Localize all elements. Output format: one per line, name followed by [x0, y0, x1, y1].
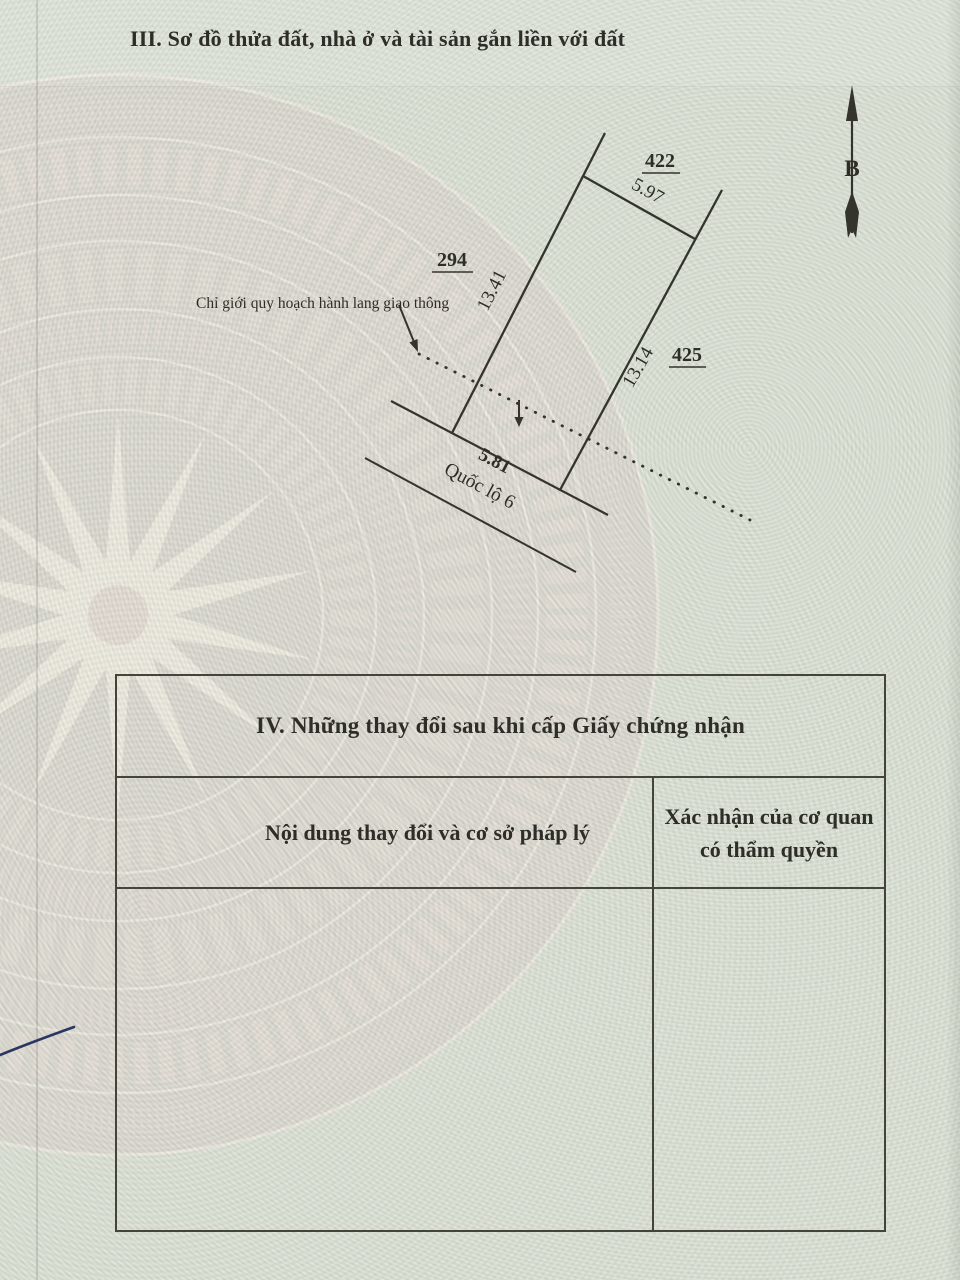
column-change-content-header: Nội dung thay đổi và cơ sở pháp lý: [117, 778, 652, 889]
planning-boundary-dotted-line: [419, 354, 750, 520]
parcel-number-294: 294: [437, 249, 467, 271]
column-authority-confirmation-body: [654, 889, 884, 1232]
authority-header-line1: Xác nhận của cơ quan: [664, 800, 873, 833]
length-right-edge-label: 13.14: [618, 343, 658, 391]
planning-boundary-note: Chỉ giới quy hoạch hành lang giao thông: [196, 295, 449, 312]
page-content: III. Sơ đồ thửa đất, nhà ở và tài sản gắ…: [0, 0, 960, 1280]
column-authority-confirmation-header: Xác nhận của cơ quan có thẩm quyền: [654, 778, 884, 889]
length-top-edge-label: 5.97: [628, 174, 667, 208]
note-pointer-arrow: [399, 305, 418, 352]
column-change-content-body: [117, 889, 652, 1232]
section-iv-title: IV. Những thay đổi sau khi cấp Giấy chứn…: [117, 676, 884, 778]
column-change-content: Nội dung thay đổi và cơ sở pháp lý: [117, 778, 652, 1232]
parcel-number-425: 425: [672, 344, 702, 366]
authority-header-line2: có thẩm quyền: [700, 833, 838, 866]
certificate-page: III. Sơ đồ thửa đất, nhà ở và tài sản gắ…: [0, 0, 960, 1280]
plot-diagram: B 422 294 425: [0, 0, 960, 660]
section-iv-table: IV. Những thay đổi sau khi cấp Giấy chứn…: [115, 674, 886, 1232]
north-arrow-head: [846, 85, 858, 121]
parcel-right-edge: [560, 190, 722, 490]
section-iv-columns: Nội dung thay đổi và cơ sở pháp lý Xác n…: [117, 778, 884, 1232]
pen-mark: [0, 0, 120, 1280]
column-authority-confirmation: Xác nhận của cơ quan có thẩm quyền: [652, 778, 884, 1232]
parcel-number-422: 422: [645, 150, 675, 172]
parcel-left-edge: [452, 133, 605, 433]
length-left-edge-label: 13.41: [473, 267, 511, 315]
north-arrow: B: [844, 85, 859, 238]
corridor-down-arrow: [515, 400, 524, 427]
north-label: B: [844, 156, 859, 181]
